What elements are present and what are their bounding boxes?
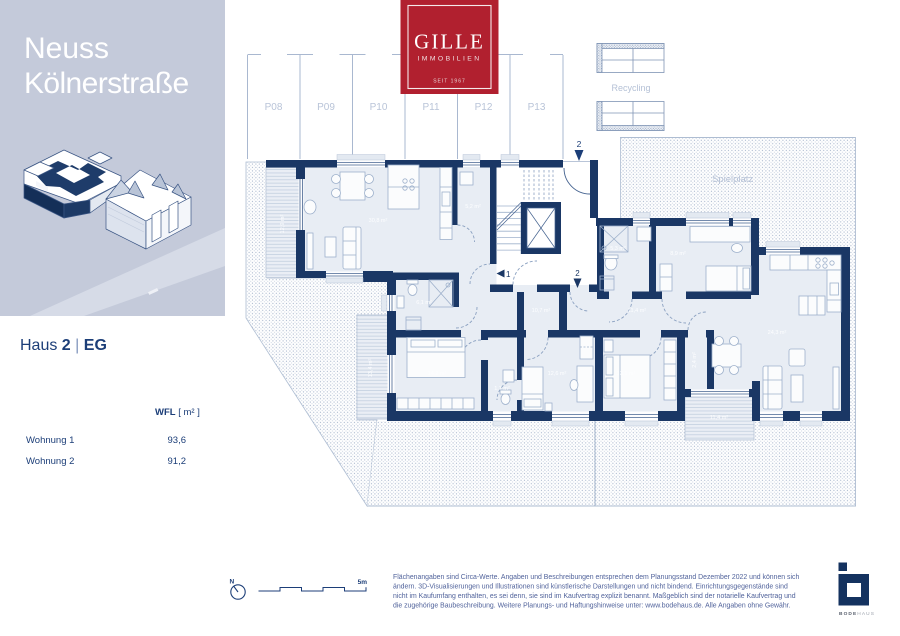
svg-text:N: N (229, 579, 234, 586)
svg-text:1: 1 (506, 270, 511, 279)
svg-text:Recycling: Recycling (611, 83, 650, 93)
svg-text:93,6: 93,6 (168, 435, 187, 446)
svg-text:P11: P11 (422, 102, 439, 113)
svg-text:91,2: 91,2 (168, 456, 187, 467)
svg-text:8,9 m²: 8,9 m² (670, 251, 686, 257)
svg-text:5,2 m²: 5,2 m² (465, 204, 481, 210)
svg-text:P13: P13 (528, 102, 546, 113)
svg-text:10,7 m²: 10,7 m² (532, 308, 551, 314)
svg-text:5m: 5m (358, 579, 368, 586)
svg-text:11,4 m²: 11,4 m² (628, 308, 646, 314)
svg-text:Wohnung 1: Wohnung 1 (26, 435, 74, 446)
svg-text:6,1 m²: 6,1 m² (416, 300, 432, 306)
svg-text:12,6 m²: 12,6 m² (548, 371, 567, 377)
svg-text:P08: P08 (265, 102, 283, 113)
svg-text:11,4 m²: 11,4 m² (710, 415, 728, 421)
svg-text:SEIT 1967: SEIT 1967 (433, 79, 466, 85)
svg-text:13,4 m²: 13,4 m² (368, 359, 374, 378)
svg-text:5,3 m²: 5,3 m² (610, 246, 626, 252)
svg-text:IMMOBILIEN: IMMOBILIEN (417, 56, 481, 63)
svg-text:die zugehörige Baubeschreibung: die zugehörige Baubeschreibung. Weitere … (393, 603, 791, 610)
svg-text:1,7 m²: 1,7 m² (494, 386, 510, 392)
svg-text:GILLE: GILLE (414, 30, 485, 54)
svg-text:WFL [ m² ]: WFL [ m² ] (155, 407, 200, 418)
svg-text:Wohnung 2: Wohnung 2 (26, 456, 74, 467)
svg-text:2: 2 (575, 269, 580, 278)
svg-text:2,4 m²: 2,4 m² (692, 352, 698, 368)
svg-text:30,8 m²: 30,8 m² (369, 218, 388, 224)
svg-text:2: 2 (577, 139, 582, 149)
svg-text:ändern. 3D-Visualisierungen un: ändern. 3D-Visualisierungen und Illustra… (393, 584, 788, 591)
svg-text:P09: P09 (317, 102, 335, 113)
svg-text:BODEHAUS: BODEHAUS (839, 611, 875, 617)
svg-text:14,2 m²: 14,2 m² (428, 371, 447, 377)
svg-text:nicht im Kaufumfang enthalten,: nicht im Kaufumfang enthalten, es sei de… (393, 593, 796, 600)
svg-text:Spielplatz: Spielplatz (712, 174, 753, 185)
svg-text:12,9 m²: 12,9 m² (280, 215, 286, 234)
svg-text:Neuss: Neuss (24, 32, 109, 65)
svg-text:Haus 2 | EG: Haus 2 | EG (20, 337, 107, 354)
svg-text:13,1 m²: 13,1 m² (617, 371, 636, 377)
svg-text:Flächenangaben sind Circa-Wert: Flächenangaben sind Circa-Werte. Angaben… (393, 574, 799, 581)
svg-text:Kölnerstraße: Kölnerstraße (24, 67, 189, 100)
svg-text:24,3 m²: 24,3 m² (768, 330, 787, 336)
svg-text:P10: P10 (370, 102, 388, 113)
svg-text:P12: P12 (475, 102, 493, 113)
